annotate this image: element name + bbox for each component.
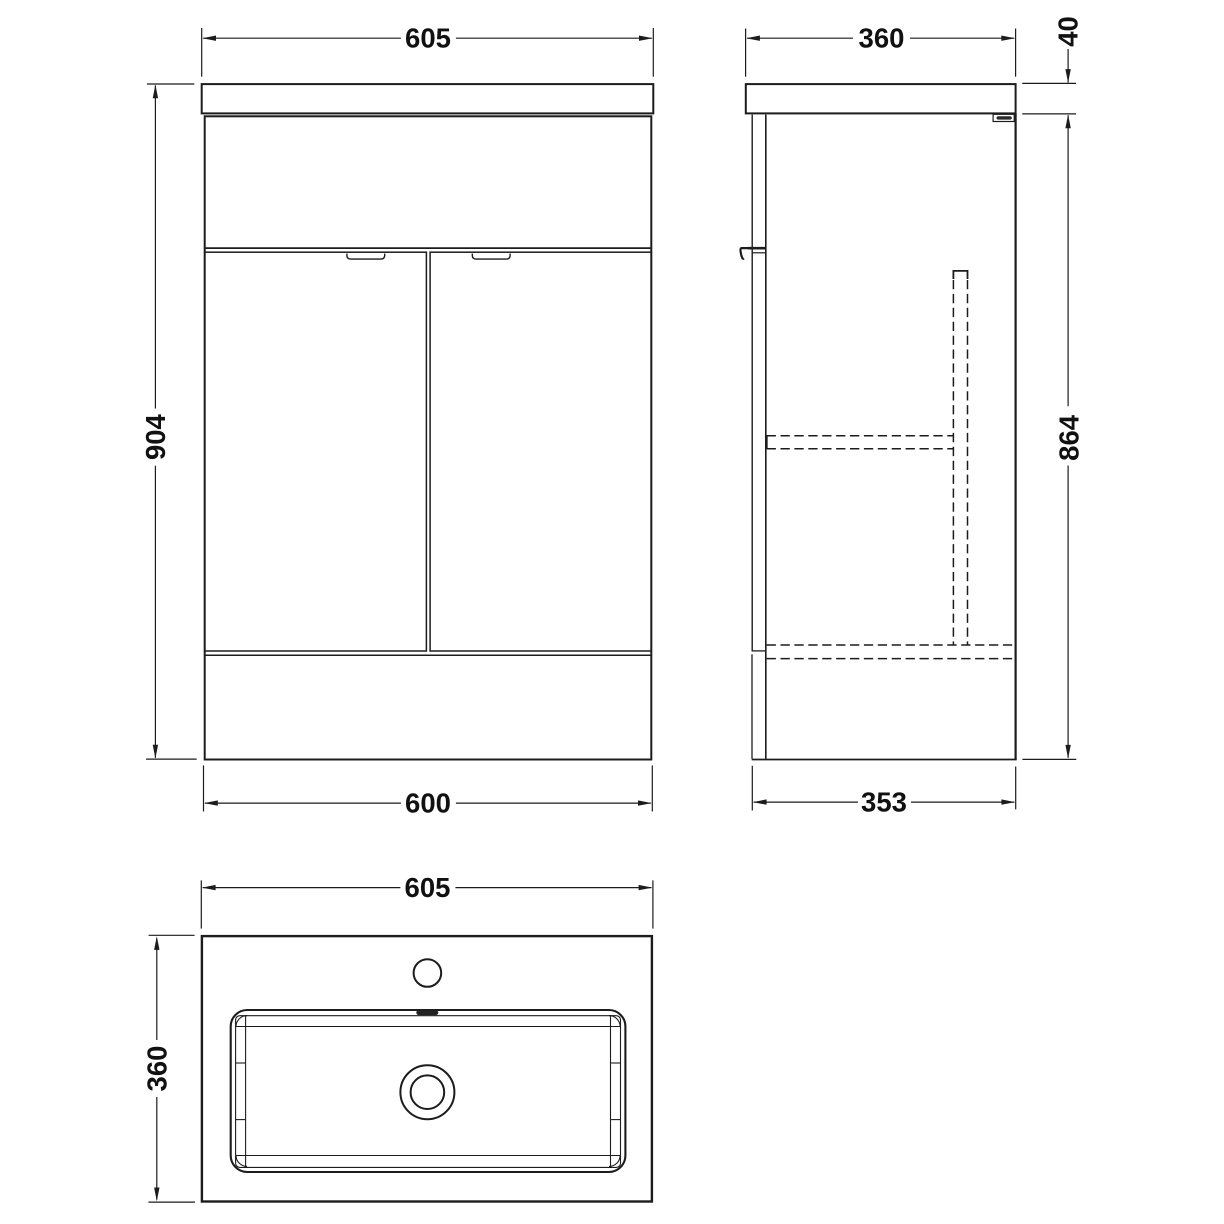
svg-text:360: 360 xyxy=(141,1046,172,1092)
svg-text:600: 600 xyxy=(405,788,451,819)
svg-text:353: 353 xyxy=(861,787,907,818)
svg-text:904: 904 xyxy=(140,413,171,460)
svg-text:40: 40 xyxy=(1053,16,1084,47)
svg-text:360: 360 xyxy=(859,23,905,54)
svg-text:864: 864 xyxy=(1054,414,1085,461)
svg-text:605: 605 xyxy=(405,872,451,903)
svg-text:605: 605 xyxy=(405,23,451,54)
